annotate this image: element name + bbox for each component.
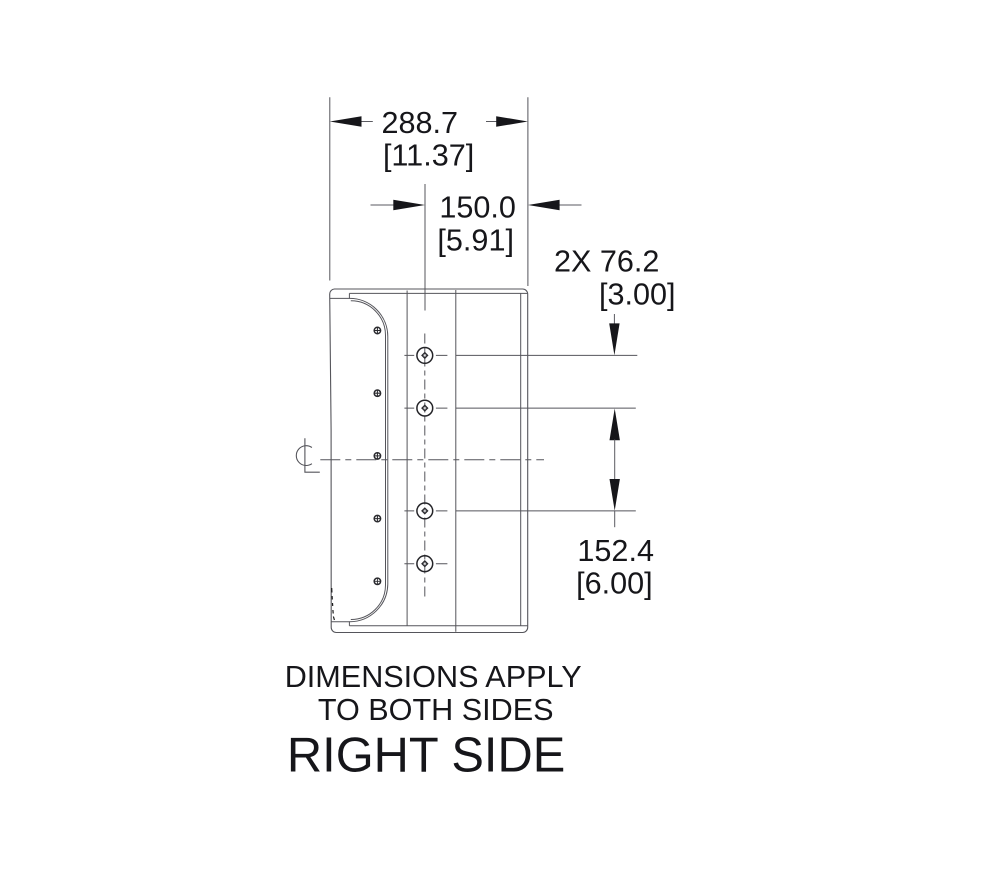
svg-text:[6.00]: [6.00] <box>576 567 653 601</box>
svg-text:[11.37]: [11.37] <box>383 139 474 173</box>
svg-text:288.7: 288.7 <box>382 106 459 140</box>
svg-text:2X 76.2: 2X 76.2 <box>554 245 659 279</box>
svg-text:RIGHT SIDE: RIGHT SIDE <box>287 728 565 782</box>
svg-text:DIMENSIONS APPLY: DIMENSIONS APPLY <box>285 660 582 694</box>
svg-text:150.0: 150.0 <box>439 191 516 225</box>
svg-text:152.4: 152.4 <box>577 534 654 568</box>
svg-text:[5.91]: [5.91] <box>437 223 514 257</box>
svg-text:TO BOTH SIDES: TO BOTH SIDES <box>318 693 554 727</box>
svg-text:[3.00]: [3.00] <box>599 277 676 311</box>
